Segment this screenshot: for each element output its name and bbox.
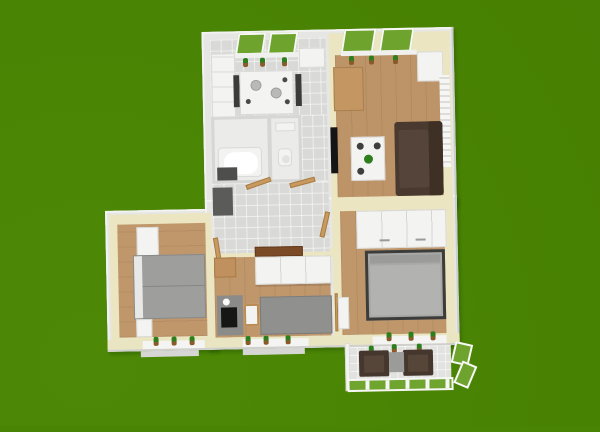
middle-bed[interactable]	[260, 295, 333, 334]
open-casement-window-lower[interactable]	[453, 361, 477, 389]
middle-plant-1[interactable]	[246, 336, 251, 345]
armchair-seat	[408, 354, 428, 371]
balcony	[345, 341, 472, 396]
cup	[285, 99, 290, 104]
exterior-sill-left	[141, 350, 199, 357]
lawn-scene[interactable]	[0, 0, 600, 426]
kitchen-wall-cabinets[interactable]	[211, 53, 236, 117]
monitor	[221, 307, 237, 327]
living-plant-1[interactable]	[349, 56, 354, 65]
right-bedroom-plant-3[interactable]	[430, 331, 435, 340]
desk-lamp	[223, 298, 230, 305]
living-window-1[interactable]	[341, 28, 377, 53]
left-double-bed[interactable]	[133, 254, 206, 319]
right-double-bed[interactable]	[365, 249, 446, 321]
cup	[282, 77, 287, 82]
right-bedroom-door[interactable]	[338, 297, 350, 329]
window-frame-middle	[243, 338, 309, 347]
kitchen-plant-2[interactable]	[260, 58, 265, 67]
middle-wardrobe[interactable]	[255, 255, 332, 285]
right-bedroom-plant-2[interactable]	[408, 332, 413, 341]
sofa[interactable]	[394, 121, 443, 196]
bath-wc-divider-wall	[267, 119, 272, 180]
right-wardrobe[interactable]	[356, 209, 447, 249]
left-nightstand-top[interactable]	[136, 227, 159, 257]
kitchen-upper-cabinet[interactable]	[299, 47, 325, 68]
exterior-sill-middle	[243, 348, 305, 355]
bed-pillows	[370, 254, 440, 263]
balcony-armchair-right[interactable]	[403, 349, 434, 376]
desk[interactable]	[217, 295, 244, 336]
bathroom-wc-block	[211, 115, 302, 184]
sofa-seat	[398, 129, 429, 188]
wardrobe-handles	[380, 239, 390, 241]
living-window-2[interactable]	[379, 28, 415, 53]
corridor-floor	[301, 114, 328, 185]
living-plant-2[interactable]	[369, 55, 374, 64]
apartment-building	[0, 0, 600, 432]
wall-tv[interactable]	[330, 127, 338, 173]
wardrobe-handles	[416, 238, 426, 240]
living-sideboard[interactable]	[333, 67, 364, 112]
bed-headboard	[134, 256, 143, 318]
coffee-table[interactable]	[351, 136, 386, 181]
balcony-glass-railing	[347, 377, 453, 392]
hall-wardrobe[interactable]	[213, 187, 234, 215]
table-plant	[364, 155, 373, 164]
kitchen-chair-right[interactable]	[295, 74, 302, 106]
balcony-side-table[interactable]	[389, 352, 404, 372]
bed-duvet	[370, 264, 441, 315]
kitchen-dining-table[interactable]	[239, 70, 294, 115]
cup	[246, 99, 251, 104]
left-bedroom-plant-2[interactable]	[172, 337, 177, 346]
plate	[250, 80, 261, 91]
dark-plate	[357, 168, 364, 175]
plate	[271, 87, 282, 98]
kitchen-plant-3[interactable]	[282, 57, 287, 66]
middle-plant-2[interactable]	[264, 336, 269, 345]
armchair-seat	[364, 355, 384, 372]
left-bedroom-plant-1[interactable]	[154, 337, 159, 346]
toilet-seat	[282, 155, 290, 163]
toilet[interactable]	[278, 148, 292, 166]
left-bedroom-plant-3[interactable]	[190, 336, 195, 345]
living-plant-3[interactable]	[393, 55, 398, 64]
left-nightstand-bottom[interactable]	[136, 319, 152, 337]
middle-plant-3[interactable]	[286, 335, 291, 344]
dark-plate	[357, 143, 364, 150]
wc-sink[interactable]	[275, 122, 295, 131]
right-bedroom-plant-1[interactable]	[386, 332, 391, 341]
middle-chair[interactable]	[244, 304, 259, 326]
balcony-armchair-left[interactable]	[359, 350, 390, 377]
dark-plate	[374, 142, 381, 149]
bed-seam	[142, 285, 204, 287]
sofa-backrest	[428, 121, 443, 195]
bath-mat[interactable]	[217, 167, 237, 180]
kitchen-plant-1[interactable]	[243, 58, 248, 67]
corner-shelf[interactable]	[214, 257, 236, 277]
